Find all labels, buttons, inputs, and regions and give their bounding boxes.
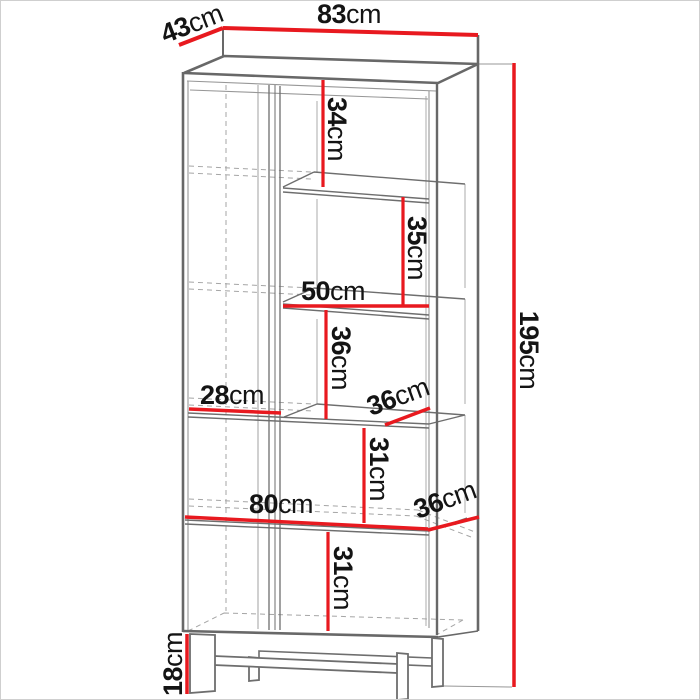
- base-frame-and-legs: [190, 634, 443, 700]
- bottom-front-edge: [183, 631, 438, 637]
- dim-label-third-shelf-height: 36cm: [326, 326, 356, 390]
- dim-label-right-shelf-width: 50cm: [301, 276, 365, 306]
- dim-label-shelf-depth-lower: 36cm: [410, 474, 480, 524]
- dim-label-bottom-section-height: 31cm: [328, 546, 358, 610]
- divider-and-door-edges: [269, 85, 280, 630]
- dim-label-shelf-depth-upper: 36cm: [363, 371, 433, 421]
- dim-label-left-compartment-width: 28cm: [200, 380, 264, 410]
- dim-label-height-overall: 195cm: [514, 311, 544, 390]
- inner-top-edges: [187, 81, 436, 99]
- dim-label-fourth-shelf-height: 31cm: [364, 437, 394, 501]
- dim-label-width-top: 83cm: [317, 1, 381, 29]
- dim-label-interior-width: 80cm: [249, 489, 313, 519]
- bookcase-dimension-drawing: 43cm 83cm 195cm 34cm 35cm 50cm 36cm 28cm…: [1, 1, 700, 700]
- bottom-right-edge: [438, 631, 478, 637]
- front-left-leg: [190, 634, 215, 693]
- top-face: [184, 56, 478, 83]
- hidden-shelf-1-lines: [189, 166, 311, 179]
- hidden-shelf-2-lines: [189, 282, 311, 295]
- dimension-diagram-page: 43cm 83cm 195cm 34cm 35cm 50cm 36cm 28cm…: [0, 0, 700, 700]
- dim-label-leg-height: 18cm: [158, 632, 188, 696]
- back-right-leg: [432, 638, 443, 687]
- dim-label-top-shelf-height: 34cm: [322, 97, 352, 161]
- dimension-labels: 43cm 83cm 195cm 34cm 35cm 50cm 36cm 28cm…: [157, 1, 544, 696]
- dim-line-width-top: [223, 28, 478, 35]
- dim-label-second-shelf-height: 35cm: [402, 216, 432, 280]
- front-right-leg: [397, 653, 408, 700]
